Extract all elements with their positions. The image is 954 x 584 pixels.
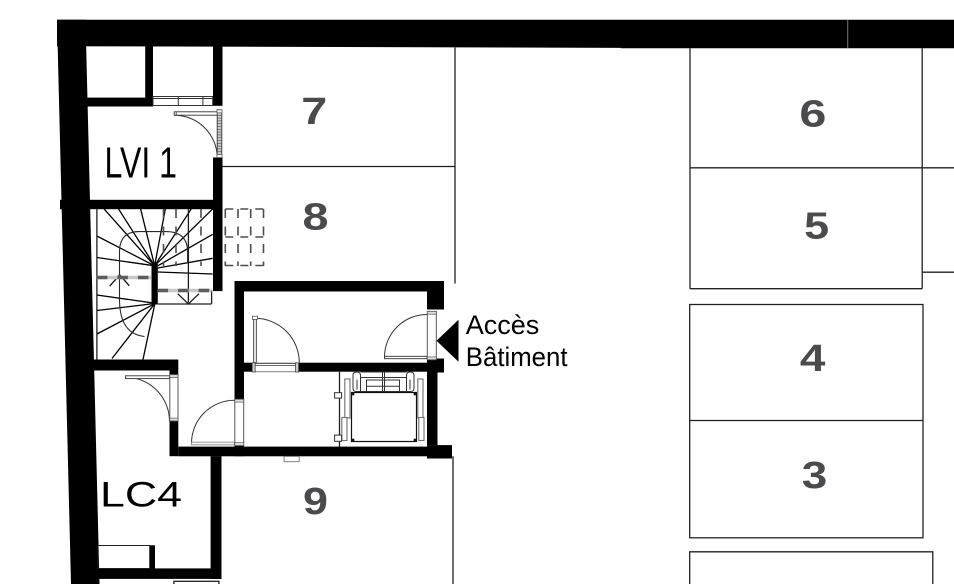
svg-text:Accès: Accès: [466, 310, 540, 340]
svg-text:5: 5: [804, 205, 829, 247]
svg-text:7: 7: [301, 91, 327, 133]
svg-text:4: 4: [800, 338, 826, 380]
svg-text:LC4: LC4: [100, 474, 182, 514]
svg-text:3: 3: [802, 455, 828, 497]
svg-text:8: 8: [303, 196, 329, 238]
svg-text:Bâtiment: Bâtiment: [466, 342, 568, 372]
svg-text:9: 9: [303, 481, 328, 523]
svg-text:LVI 1: LVI 1: [105, 139, 178, 187]
svg-text:6: 6: [799, 94, 826, 136]
